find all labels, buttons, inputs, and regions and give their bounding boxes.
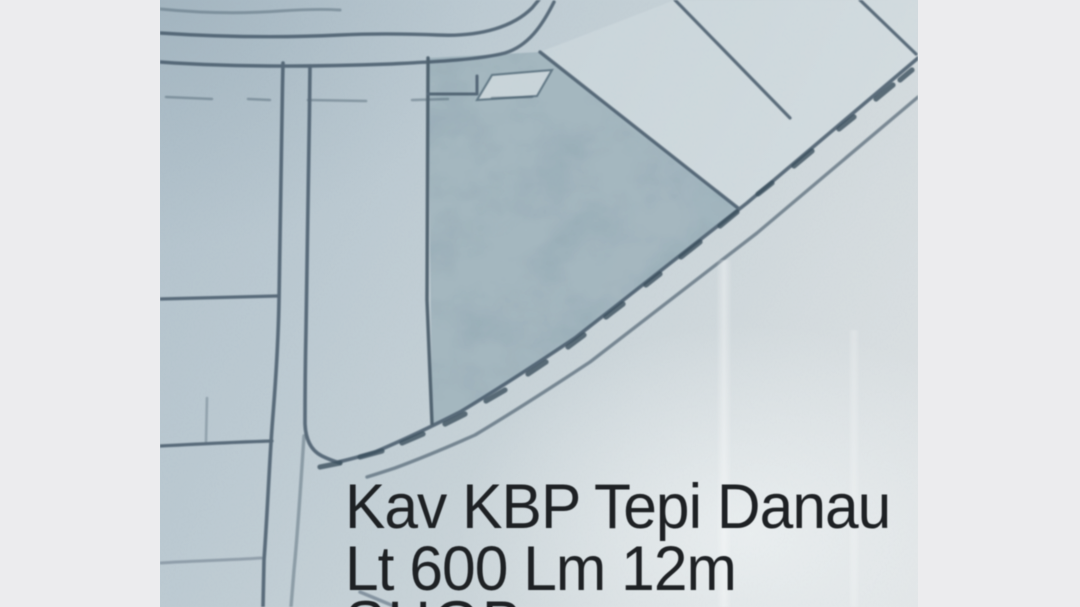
caption: Kav KBP Tepi Danau Lt 600 Lm 12m: [345, 476, 918, 600]
image-viewer-canvas: Kav KBP Tepi Danau Lt 600 Lm 12m SHGB: [0, 0, 1080, 607]
caption-line-1: Kav KBP Tepi Danau: [345, 476, 918, 538]
letterbox-left: [0, 0, 160, 607]
land-plot-map-photo: Kav KBP Tepi Danau Lt 600 Lm 12m SHGB: [160, 0, 918, 607]
letterbox-right: [918, 0, 1080, 607]
caption-line-3: SHGB: [345, 593, 524, 607]
